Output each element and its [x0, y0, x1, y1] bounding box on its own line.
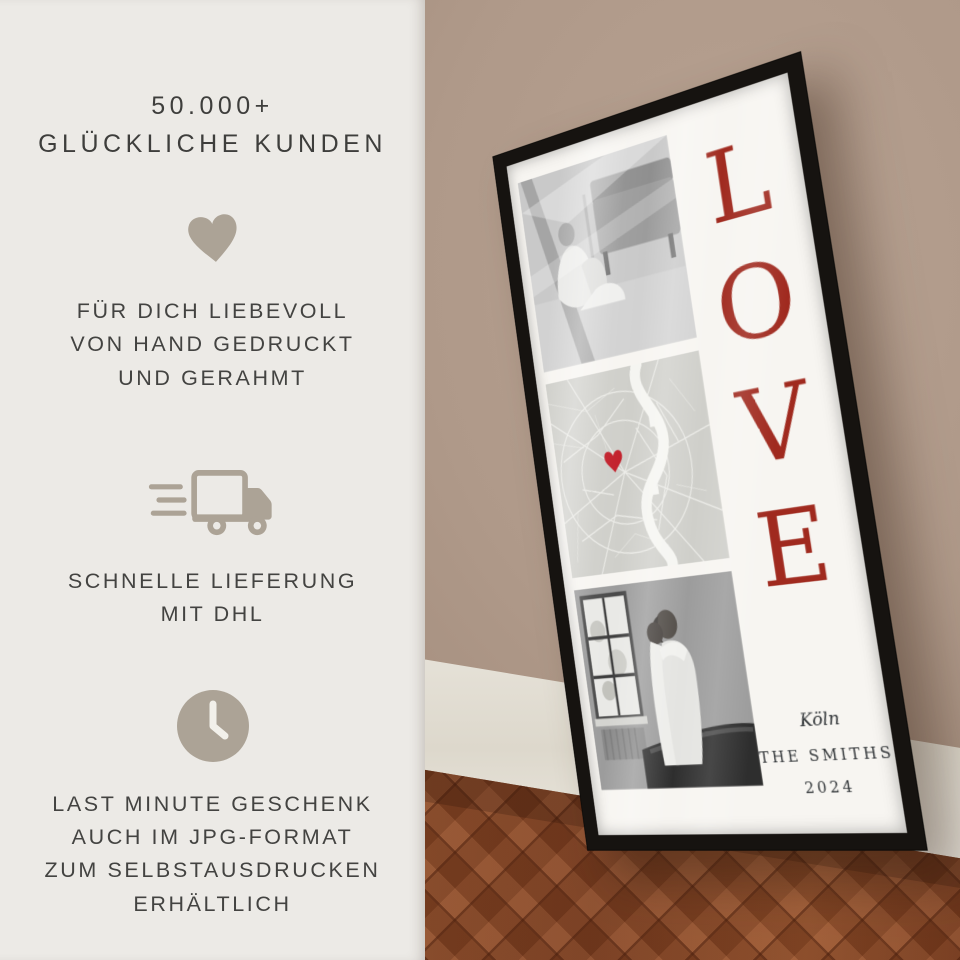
- product-photo: L O V E Köln THE SMITHS 2024: [425, 0, 960, 960]
- poster-photo-bottom: [574, 571, 763, 790]
- love-letter: E: [750, 492, 837, 603]
- poster-caption: Köln THE SMITHS 2024: [753, 705, 902, 798]
- customers-label: GLÜCKLICHE KUNDEN: [38, 126, 387, 164]
- benefit-line: SCHNELLE LIEFERUNG: [68, 565, 357, 598]
- love-letter: L: [700, 125, 777, 240]
- benefit-line: LAST MINUTE GESCHENK: [45, 788, 381, 821]
- poster-family-name: THE SMITHS: [758, 745, 896, 768]
- benefit-line: AUCH IM JPG-FORMAT: [45, 821, 381, 854]
- benefit-line: MIT DHL: [68, 598, 357, 631]
- benefit-text-delivery: SCHNELLE LIEFERUNG MIT DHL: [68, 565, 357, 632]
- product-marketing-image: 50.000+ GLÜCKLICHE KUNDEN FÜR DICH LIEBE…: [0, 0, 960, 960]
- poster-map: [546, 350, 730, 578]
- benefit-text-printed: FÜR DICH LIEBEVOLL VON HAND GEDRUCKT UND…: [70, 295, 354, 395]
- benefit-line: UND GERAHMT: [70, 362, 354, 395]
- benefits-panel: 50.000+ GLÜCKLICHE KUNDEN FÜR DICH LIEBE…: [0, 0, 425, 960]
- heart-icon: [181, 211, 245, 269]
- poster-city: Köln: [753, 705, 891, 734]
- poster-year: 2024: [763, 778, 902, 799]
- customers-count: 50.000+: [38, 88, 387, 126]
- benefit-line: VON HAND GEDRUCKT: [70, 328, 354, 361]
- benefit-text-lastminute: LAST MINUTE GESCHENK AUCH IM JPG-FORMAT …: [45, 788, 381, 921]
- love-letter: V: [733, 368, 818, 481]
- benefit-line: ZUM SELBSTAUSDRUCKEN: [45, 854, 381, 887]
- clock-icon: [175, 688, 251, 764]
- benefit-line: ERHÄLTLICH: [45, 888, 381, 921]
- benefit-line: FÜR DICH LIEBEVOLL: [70, 295, 354, 328]
- love-letter: O: [710, 244, 803, 361]
- poster-photo-top: [518, 135, 697, 372]
- customers-heading: 50.000+ GLÜCKLICHE KUNDEN: [38, 88, 387, 163]
- delivery-truck-icon: [147, 461, 279, 547]
